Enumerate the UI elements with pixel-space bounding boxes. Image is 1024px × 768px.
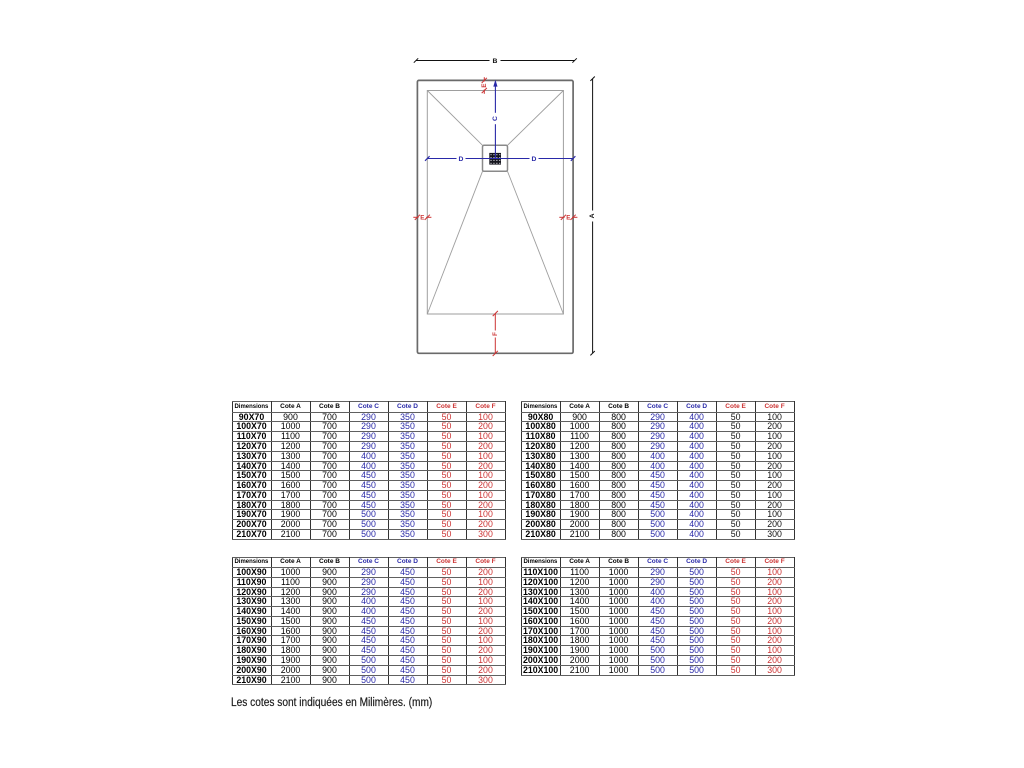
svg-text:C: C — [492, 116, 499, 121]
svg-text:D: D — [532, 156, 537, 163]
svg-text:B: B — [493, 58, 498, 65]
svg-text:F: F — [492, 332, 499, 336]
svg-text:D: D — [459, 156, 464, 163]
svg-text:E: E — [420, 215, 424, 222]
svg-text:A: A — [589, 213, 596, 218]
svg-text:E: E — [481, 83, 488, 87]
svg-text:E: E — [566, 215, 570, 222]
